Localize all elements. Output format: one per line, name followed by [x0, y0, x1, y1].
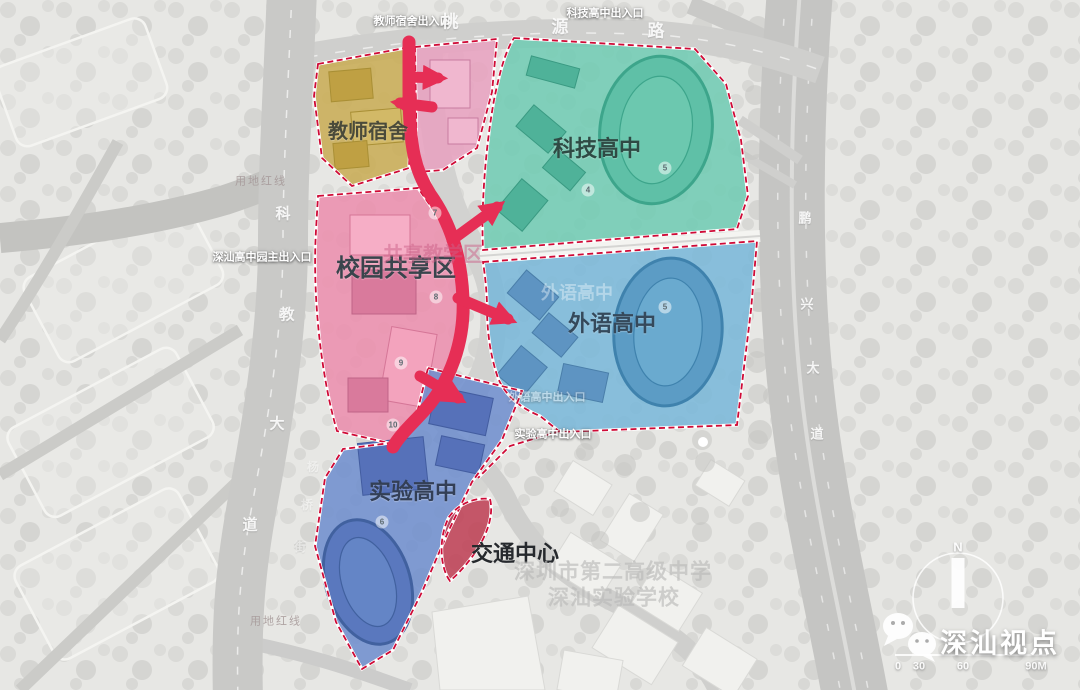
arrow-to-north-shared — [410, 77, 438, 78]
badge-5-tech: 5 — [659, 162, 672, 175]
badge-10: 10 — [387, 419, 400, 432]
badge-8: 8 — [430, 291, 443, 304]
site-map-svg — [0, 0, 1080, 690]
badge-7: 7 — [429, 207, 442, 220]
badge-4: 4 — [582, 184, 595, 197]
watermark-text: 深汕视点 — [940, 622, 1060, 661]
badge-6: 6 — [376, 516, 389, 529]
zone-tech-high — [482, 38, 748, 250]
site-plan-map: 教师宿舍 校园共享区 科技高中 外语高中 实验高中 交通中心 共享教学区 外语高… — [0, 0, 1080, 690]
entrance-dot — [698, 437, 708, 447]
badge-5-foreign: 5 — [659, 301, 672, 314]
zone-foreign-lang-high — [483, 241, 757, 432]
badge-9: 9 — [395, 357, 408, 370]
arrow-to-dorm — [400, 103, 432, 107]
